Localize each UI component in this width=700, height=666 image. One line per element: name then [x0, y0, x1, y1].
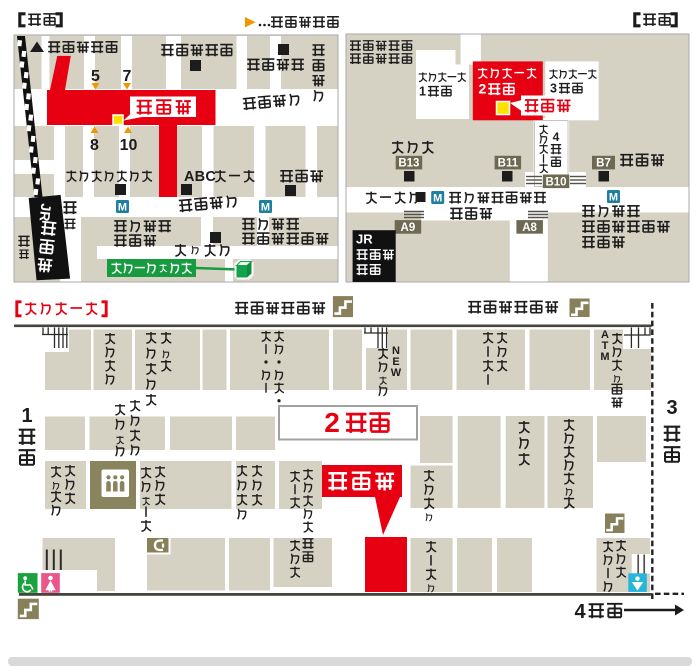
svg-text:ABC: ABC — [184, 169, 216, 185]
svg-text:A8: A8 — [522, 222, 537, 234]
svg-text:M: M — [118, 202, 127, 214]
svg-text:M: M — [609, 192, 618, 204]
svg-text:3: 3 — [666, 397, 677, 419]
svg-text:W: W — [391, 367, 402, 379]
svg-text:2: 2 — [479, 81, 487, 97]
svg-text:M: M — [433, 193, 442, 205]
svg-text:3: 3 — [550, 82, 557, 96]
svg-text:JR: JR — [356, 232, 373, 247]
svg-text:1: 1 — [21, 405, 32, 427]
svg-text:M: M — [261, 202, 270, 214]
svg-text:4: 4 — [553, 130, 560, 144]
svg-text:B10: B10 — [545, 176, 566, 188]
svg-text:M: M — [600, 351, 609, 363]
svg-text:1: 1 — [419, 85, 426, 99]
svg-text:A9: A9 — [401, 222, 416, 234]
svg-text:10: 10 — [120, 137, 138, 154]
svg-text:8: 8 — [90, 137, 99, 154]
svg-text:JR: JR — [37, 203, 55, 222]
svg-text:B11: B11 — [498, 158, 519, 170]
svg-text:4: 4 — [574, 601, 586, 623]
svg-text:5: 5 — [91, 68, 100, 85]
svg-text:7: 7 — [123, 68, 132, 85]
svg-text:B7: B7 — [596, 158, 611, 170]
svg-text:2: 2 — [324, 407, 340, 438]
svg-text:B13: B13 — [398, 158, 419, 170]
